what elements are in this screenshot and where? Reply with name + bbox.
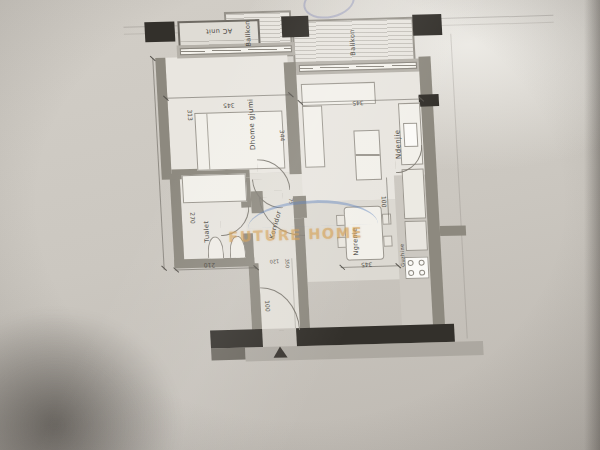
- dim-hall-a: 120: [269, 259, 279, 265]
- wall-bottom-left: [210, 329, 263, 348]
- dim-entrance-door: 100: [264, 300, 272, 312]
- dim-bedroom-depth: 313: [187, 109, 195, 121]
- dim-dining-width: 345: [361, 262, 373, 269]
- floor-plan: AC unit Ballkon Ballkon Dhome gjumi Nden…: [131, 5, 480, 366]
- dim-living-width: 345: [352, 100, 364, 107]
- photo-shadow: [0, 310, 180, 450]
- entrance-triangle: [273, 346, 288, 357]
- dim-toilet-depth: 270: [189, 212, 197, 224]
- room-label-balcony-left: Ballkon: [243, 20, 252, 47]
- room-label-living: Ndenjie: [393, 129, 403, 159]
- column-balcony-right: [412, 14, 442, 36]
- dim-bedroom-width: 345: [223, 102, 235, 109]
- dim-hall-b: 350: [284, 259, 291, 269]
- room-label-balcony-right: Ballkon: [348, 29, 357, 56]
- bathtub: [182, 174, 247, 204]
- wall-bottom-step: [211, 348, 246, 361]
- stove: [404, 256, 429, 279]
- photo-right-edge: [584, 0, 600, 450]
- room-label-toilet: Tualet: [202, 221, 211, 243]
- stove-burner: [408, 270, 414, 276]
- coffee-table: [353, 130, 382, 181]
- stove-burner: [407, 260, 413, 266]
- dim-toilet-width: 210: [204, 262, 216, 269]
- sofa-side: [302, 105, 325, 167]
- floor-plan-photo: AC unit Ballkon Ballkon Dhome gjumi Nden…: [0, 0, 600, 450]
- wall-right-stub: [440, 225, 467, 236]
- construction-line: [450, 34, 467, 339]
- stove-burner: [419, 270, 425, 276]
- room-label-ac-unit: AC unit: [205, 27, 232, 36]
- dim-bedroom-right: 344: [279, 130, 287, 142]
- column-top-left: [144, 21, 175, 42]
- column-balcony-mid: [281, 16, 309, 38]
- watermark: FUTURE HOME: [227, 195, 409, 253]
- watermark-text: FUTURE HOME: [228, 224, 363, 245]
- kitchen-sink: [403, 123, 418, 147]
- stove-burner: [418, 260, 424, 266]
